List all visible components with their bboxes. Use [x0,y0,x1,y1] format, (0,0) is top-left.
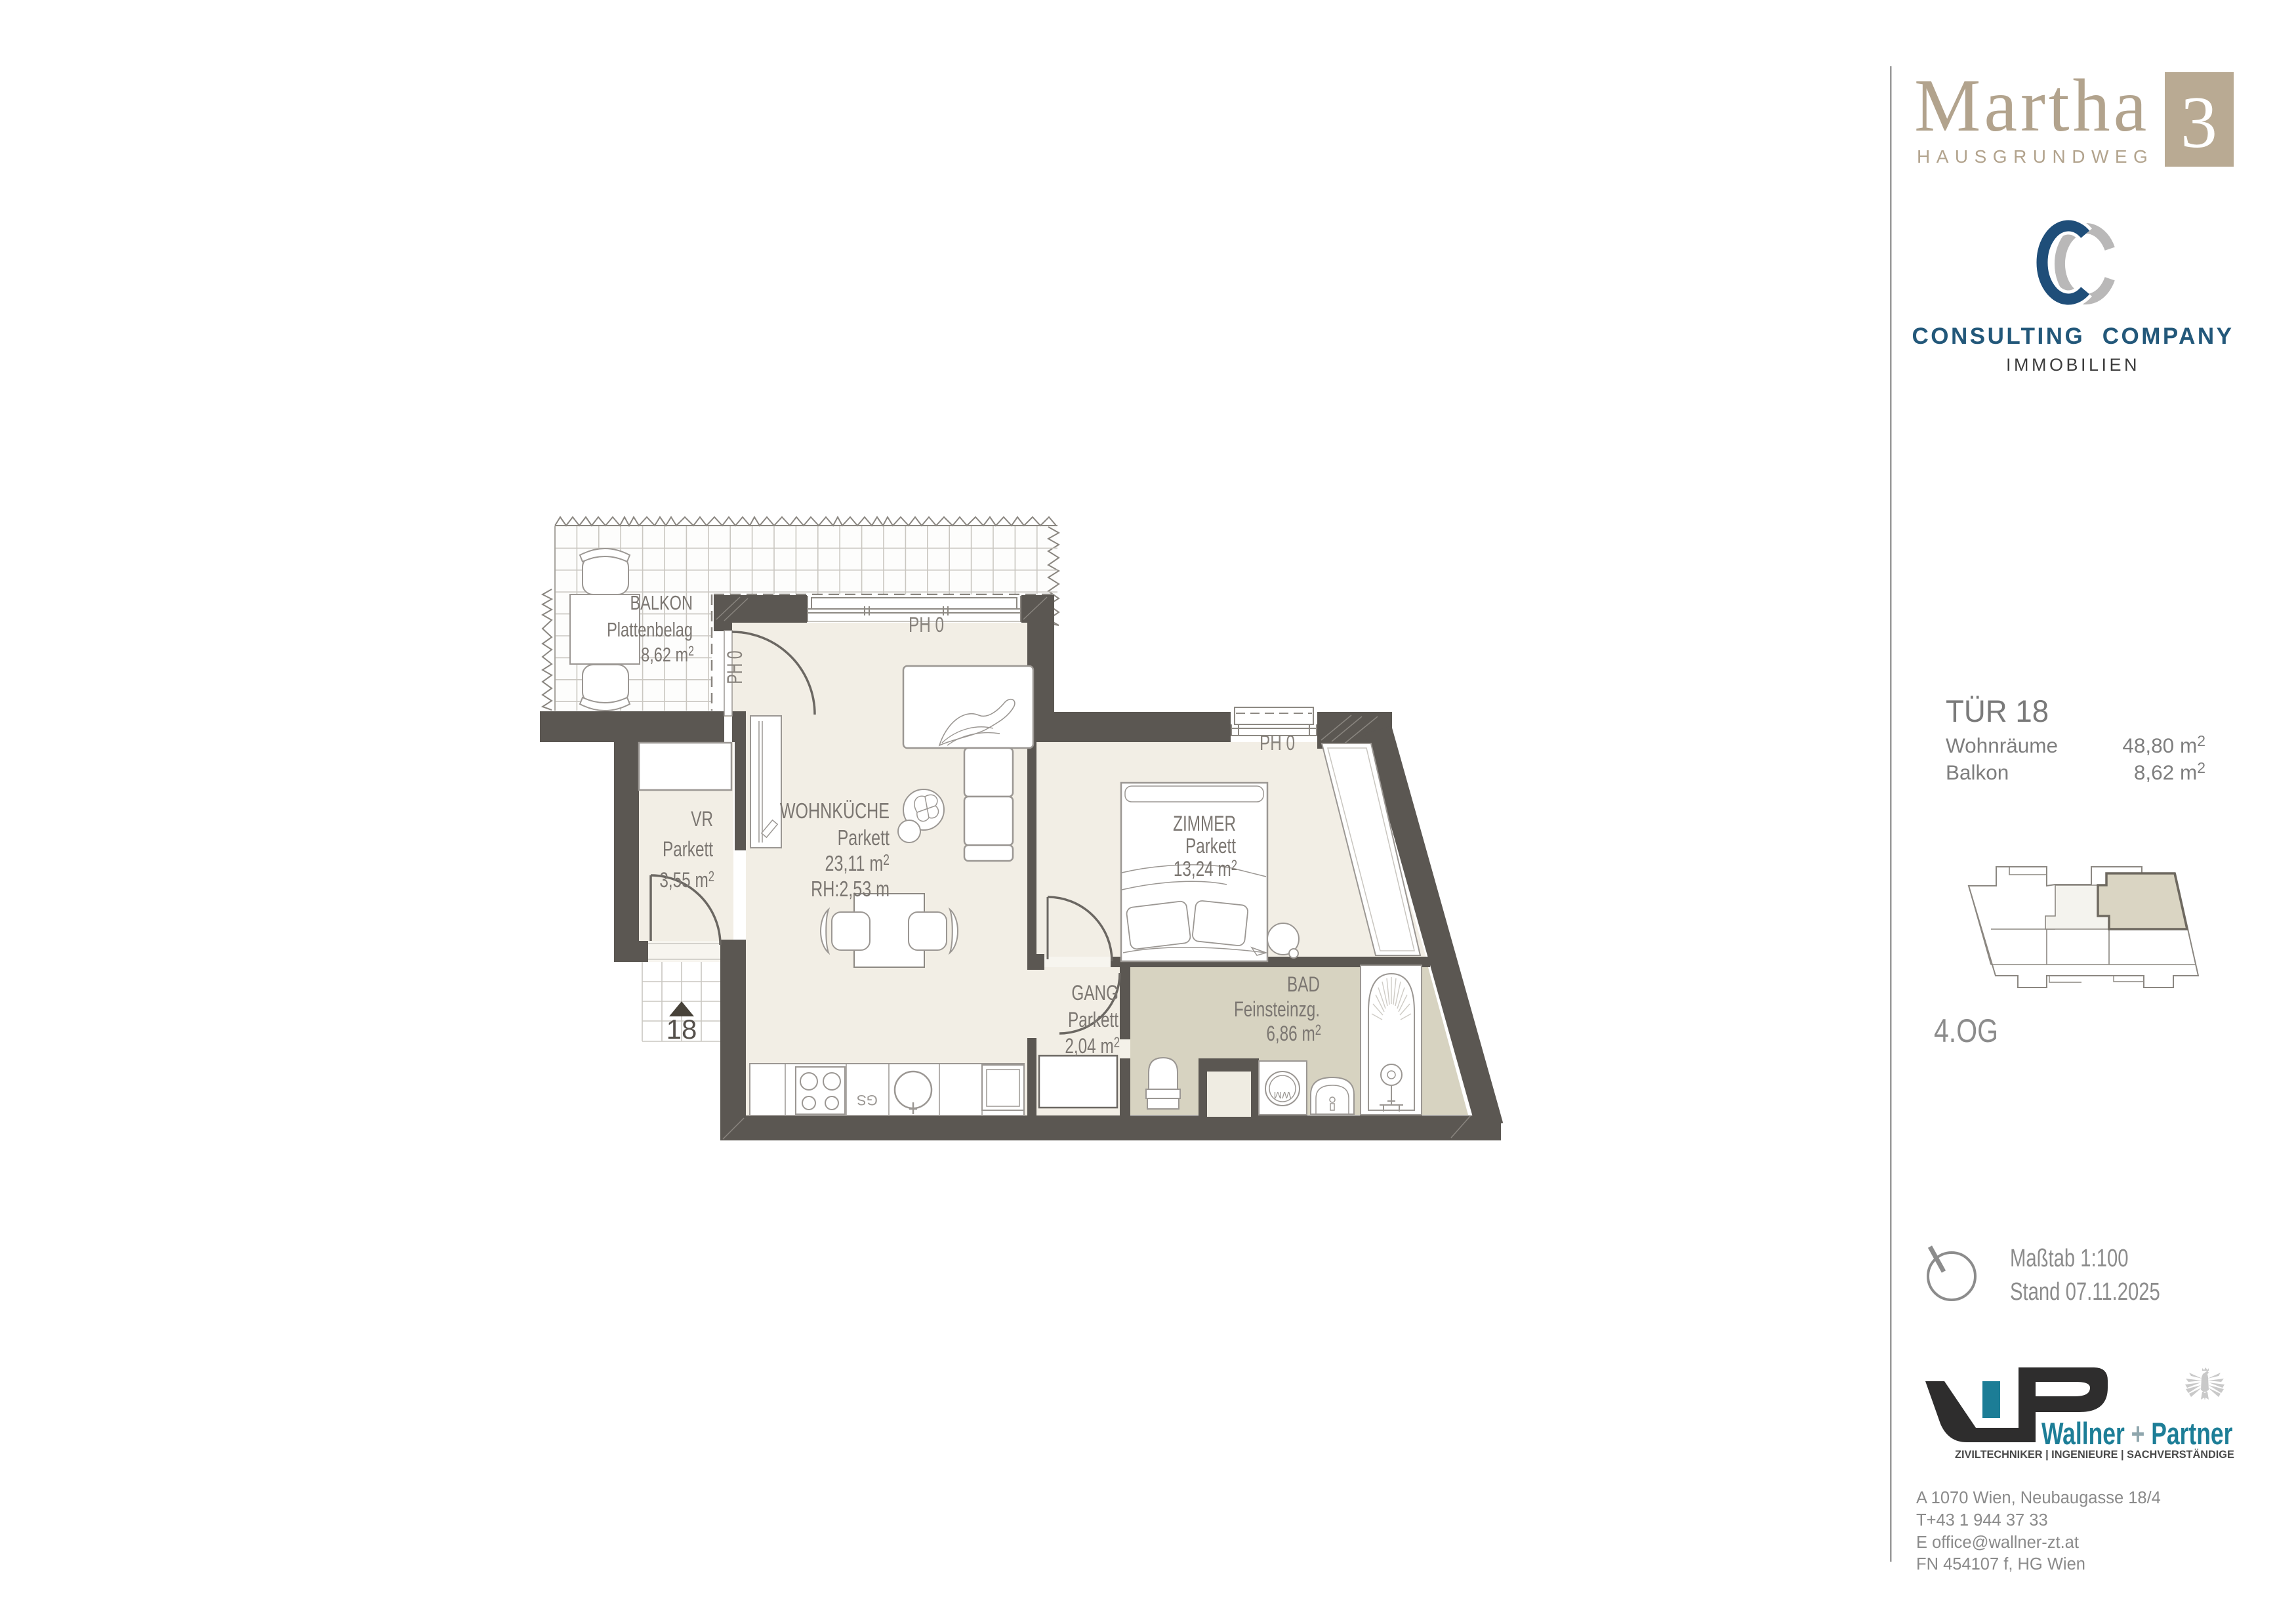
svg-text:RH:2,53 m: RH:2,53 m [811,877,890,902]
svg-text:ZIMMER: ZIMMER [1173,812,1236,836]
svg-text:BALKON: BALKON [630,591,693,614]
svg-text:Plattenbelag: Plattenbelag [607,618,693,641]
svg-text:Parkett: Parkett [838,826,890,850]
svg-text:Parkett: Parkett [663,838,713,862]
svg-text:13,24 m2: 13,24 m2 [1174,858,1237,881]
svg-text:E office@wallner-zt.at: E office@wallner-zt.at [1916,1533,2079,1552]
svg-text:PH 0: PH 0 [1260,732,1295,755]
svg-text:Martha: Martha [1914,64,2150,147]
svg-text:4.OG: 4.OG [1934,1012,1998,1049]
svg-text:23,11 m2: 23,11 m2 [825,852,890,876]
svg-text:Parkett: Parkett [1185,835,1236,858]
svg-text:VR: VR [691,808,713,831]
svg-text:8,62 m2: 8,62 m2 [641,643,694,666]
svg-text:Balkon: Balkon [1946,760,2009,784]
svg-text:6,86 m2: 6,86 m2 [1266,1022,1321,1046]
svg-text:3: 3 [2181,82,2217,163]
svg-text:TÜR 18: TÜR 18 [1946,694,2049,728]
svg-text:CONSULTING COMPANY: CONSULTING COMPANY [1912,323,2234,349]
svg-text:2,04 m2: 2,04 m2 [1065,1035,1120,1058]
svg-text:18: 18 [666,1014,697,1045]
svg-text:Parkett: Parkett [1068,1009,1118,1032]
svg-text:ZIVILTECHNIKER | INGENIEURE |: ZIVILTECHNIKER | INGENIEURE | SACHVERSTÄ… [1955,1449,2234,1461]
svg-text:PH 0: PH 0 [723,650,747,684]
svg-text:FN 454107 f, HG Wien: FN 454107 f, HG Wien [1916,1555,2085,1573]
svg-text:Maßtab 1:100: Maßtab 1:100 [2010,1244,2129,1272]
svg-text:48,80 m2: 48,80 m2 [2122,732,2205,757]
svg-text:3,55 m2: 3,55 m2 [659,869,714,892]
svg-text:GS: GS [857,1092,878,1108]
svg-text:PH 0: PH 0 [909,614,944,637]
svg-text:WOHNKÜCHE: WOHNKÜCHE [780,799,890,823]
svg-text:HAUSGRUNDWEG: HAUSGRUNDWEG [1917,146,2154,167]
svg-text:A 1070 Wien, Neubaugasse 18/4: A 1070 Wien, Neubaugasse 18/4 [1916,1489,2161,1507]
svg-text:Stand 07.11.2025: Stand 07.11.2025 [2010,1278,2160,1306]
svg-text:Wallner + Partner: Wallner + Partner [2041,1416,2232,1451]
svg-text:WM: WM [1274,1089,1292,1100]
svg-text:Feinsteinzg.: Feinsteinzg. [1234,998,1320,1022]
svg-text:GANG: GANG [1071,982,1118,1005]
svg-text:IMMOBILIEN: IMMOBILIEN [2006,355,2140,375]
svg-text:BAD: BAD [1287,973,1320,997]
svg-text:8,62 m2: 8,62 m2 [2134,759,2205,784]
svg-text:Wohnräume: Wohnräume [1946,734,2058,757]
svg-text:T+43 1 944 37 33: T+43 1 944 37 33 [1916,1511,2048,1530]
